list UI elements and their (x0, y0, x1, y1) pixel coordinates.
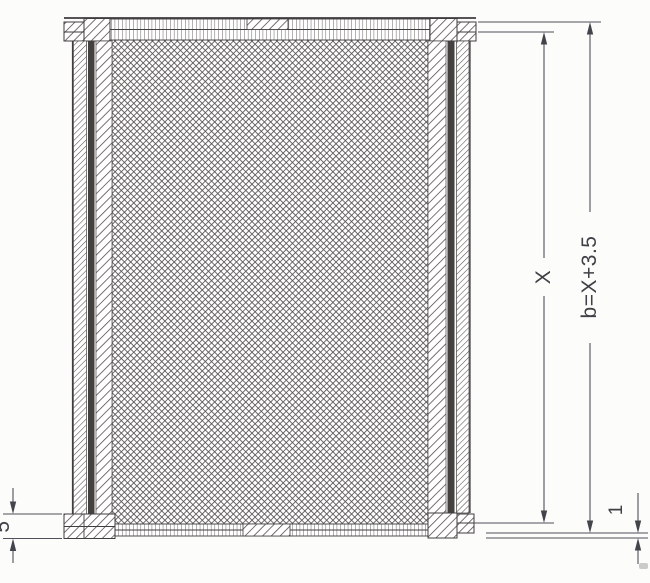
dimension-x: X (474, 32, 555, 523)
top-bar-right-block (430, 19, 457, 42)
top-bar-left-block (84, 19, 110, 42)
top-ladder-strip (110, 19, 430, 40)
right-side-bar-inner-strip (428, 41, 446, 513)
dim-5-arrow-up (10, 539, 16, 552)
dim-1-arrow-down (635, 521, 641, 534)
dim-b-arrow-up (587, 22, 593, 35)
left-side-bar (73, 41, 113, 514)
frame-section-drawing: X b=X+3.5 5 1 (0, 0, 650, 583)
bottom-bar-right-block (428, 513, 457, 538)
top-bar-right-lug (457, 22, 476, 41)
right-side-bar-outer-strip (457, 41, 470, 513)
bottom-bar-right-lug (457, 514, 474, 533)
bottom-strip-hatch-patch (243, 524, 290, 536)
dimension-b: b=X+3.5 (478, 22, 648, 538)
dim-x-arrow-down (541, 511, 547, 524)
dimension-5: 5 (0, 488, 62, 563)
right-side-bar (428, 41, 470, 513)
top-strip-hatch-patch (247, 19, 288, 30)
left-side-bar-outer-strip (74, 41, 87, 514)
right-side-bar-dark-strip (448, 41, 455, 513)
left-side-bar-inner-strip (96, 41, 112, 514)
dim-x-arrow-up (541, 32, 547, 45)
dim-1-arrow-up (635, 538, 641, 551)
frame-drawing (64, 18, 476, 539)
dim-1-label: 1 (606, 505, 627, 516)
dim-b-arrow-down (587, 521, 593, 534)
dim-5-arrow-down (10, 502, 16, 515)
top-bar-left-lug (64, 22, 84, 41)
comb-foundation-panel (112, 40, 428, 524)
drawing-canvas: X b=X+3.5 5 1 (0, 0, 650, 583)
dim-5-label: 5 (0, 520, 14, 532)
dimension-1: 1 (606, 493, 641, 564)
bottom-ladder-strip (115, 524, 428, 536)
dim-b-label: b=X+3.5 (578, 236, 601, 319)
scan-artifact (639, 563, 648, 569)
left-side-bar-dark-strip (88, 41, 95, 514)
dim-x-label: X (532, 270, 555, 285)
